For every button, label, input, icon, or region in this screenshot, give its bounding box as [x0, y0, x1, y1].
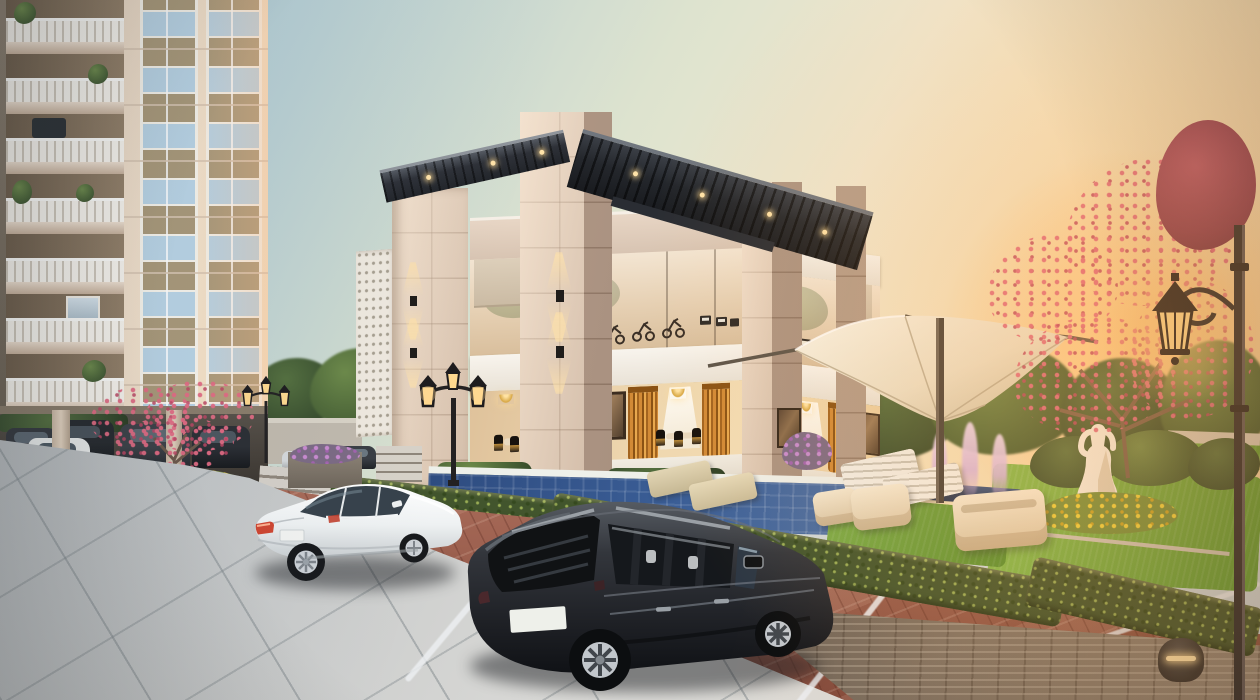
wall-sconce [410, 296, 417, 306]
bollard-light [1158, 638, 1204, 682]
architectural-render-scene [0, 0, 1260, 700]
purple-flowers [290, 444, 360, 464]
chandelier [498, 394, 514, 405]
balcony-column [6, 0, 124, 414]
wall-sconce [556, 346, 564, 358]
lamp-post-double [418, 356, 488, 486]
dark-suv [448, 496, 843, 700]
lamp-post-double-far [240, 370, 292, 466]
white-sedan [242, 468, 472, 593]
wall-sconce [410, 348, 417, 358]
lamp-post-single [1148, 225, 1253, 700]
window-column-a [140, 0, 198, 406]
wall-sconce [556, 290, 564, 302]
